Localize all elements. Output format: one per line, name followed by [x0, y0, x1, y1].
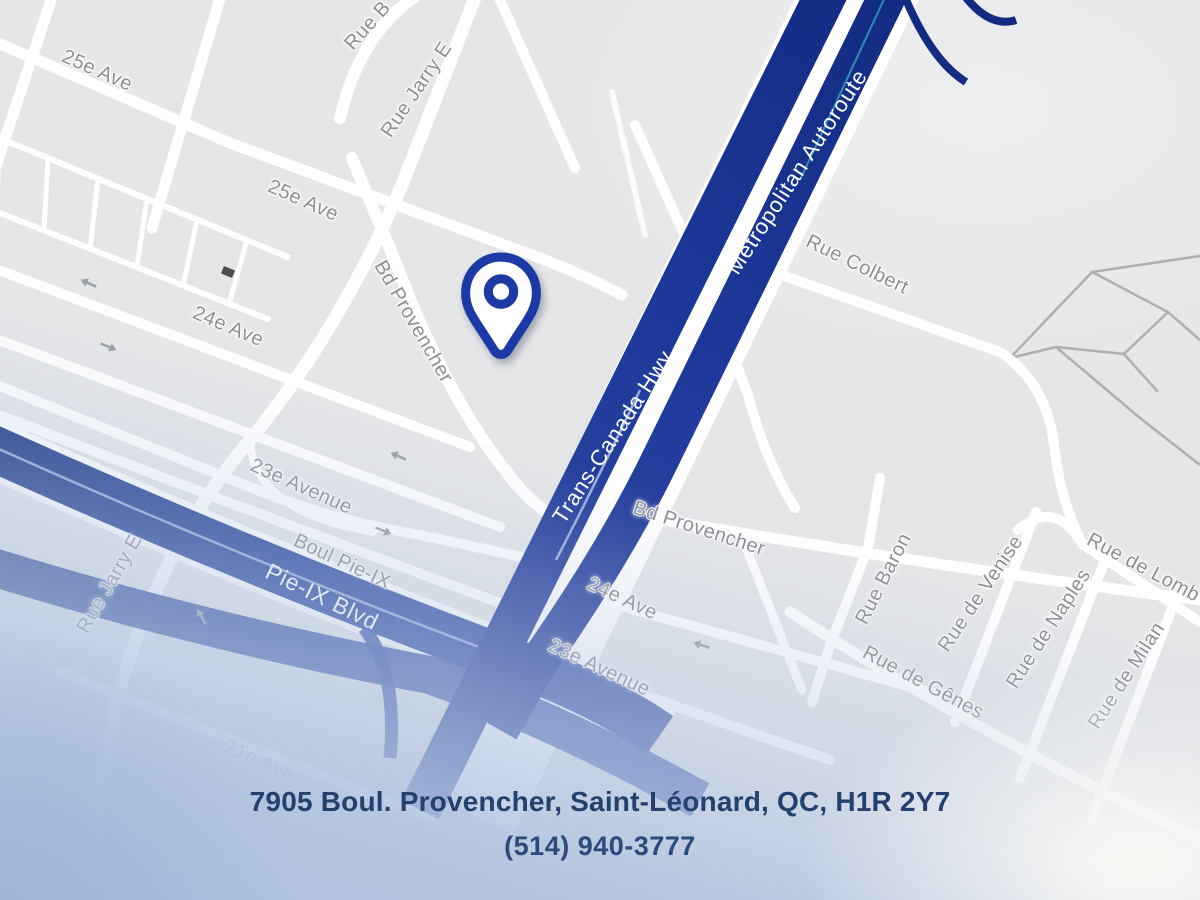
lot-outline-lines [1010, 256, 1200, 465]
address-text: 7905 Boul. Provencher, Saint-Léonard, QC… [0, 786, 1200, 818]
map-canvas[interactable]: 25e Ave 25e Ave Rue Jarry E Rue B Bd Pro… [0, 0, 1200, 900]
map-roads-layer [0, 0, 1200, 900]
highway-lines [0, 0, 1016, 810]
phone-text: (514) 940-3777 [0, 831, 1200, 862]
building-icon [221, 266, 235, 278]
location-pin-icon[interactable] [451, 248, 551, 375]
address-block: 7905 Boul. Provencher, Saint-Léonard, QC… [0, 786, 1200, 862]
